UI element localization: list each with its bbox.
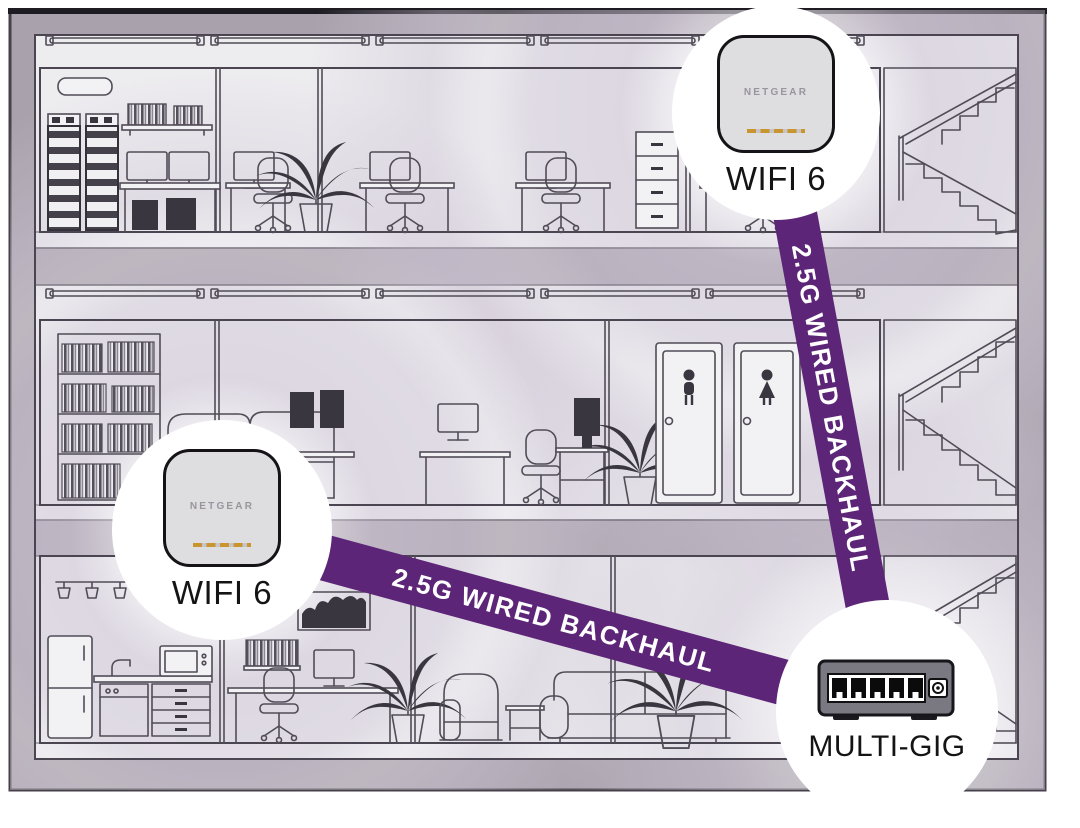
wifi6-ap-left-node: NETGEAR WIFI 6 xyxy=(112,420,332,640)
netgear-access-point-device: NETGEAR xyxy=(717,35,835,153)
wifi6-label: WIFI 6 xyxy=(726,160,826,198)
wifi6-label: WIFI 6 xyxy=(172,574,272,612)
restroom-door-women xyxy=(734,343,800,503)
wifi6-ap-top-node: NETGEAR WIFI 6 xyxy=(672,6,880,220)
ethernet-ports xyxy=(832,678,923,698)
led-indicator xyxy=(193,543,251,547)
netgear-backhaul-diagram: 2.5G WIRED BACKHAUL 2.5G WIRED BACKHAUL … xyxy=(0,0,1080,828)
power-connector xyxy=(929,679,947,697)
led-indicator xyxy=(747,129,805,133)
multi-gig-switch-node: MULTI-GIG xyxy=(776,600,998,822)
multi-gig-label: MULTI-GIG xyxy=(808,730,965,764)
netgear-logo: NETGEAR xyxy=(720,87,832,98)
ethernet-switch-device xyxy=(817,659,957,723)
netgear-logo: NETGEAR xyxy=(166,501,278,512)
netgear-access-point-device: NETGEAR xyxy=(163,449,281,567)
restroom-door-men xyxy=(656,343,722,503)
